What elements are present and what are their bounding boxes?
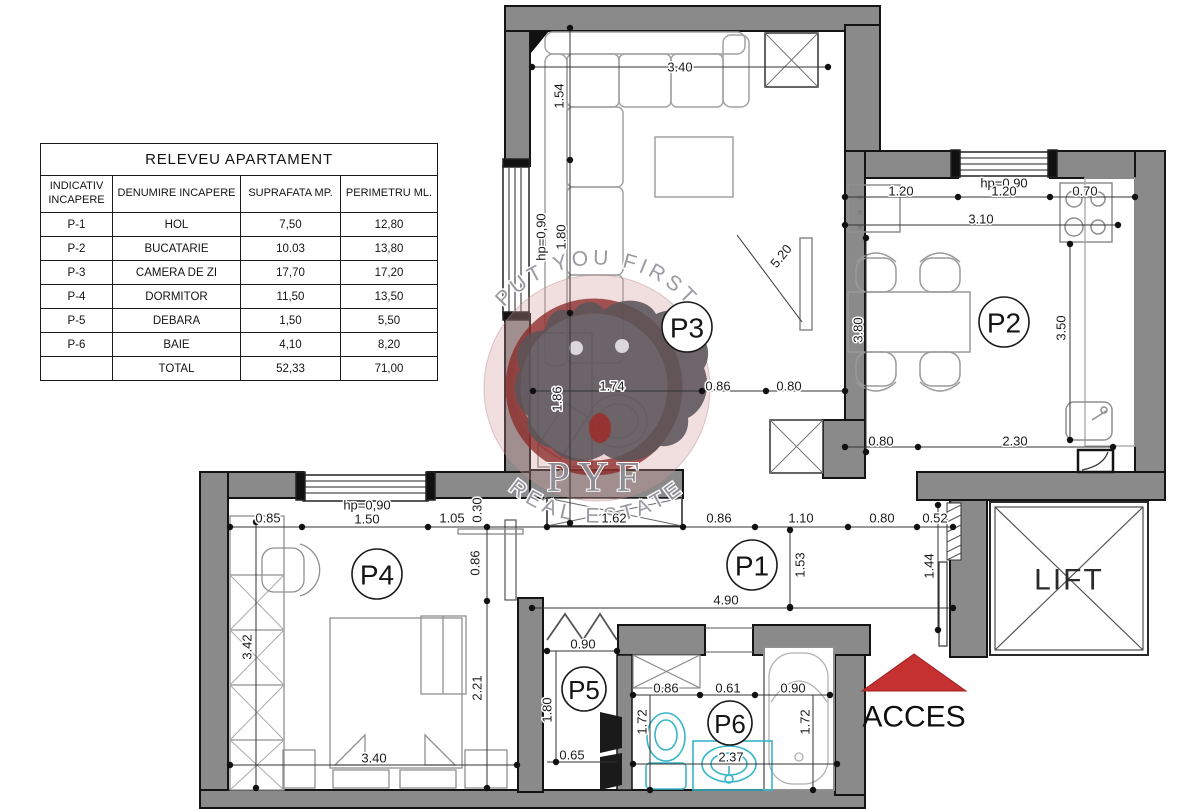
dim-label: 2.21: [470, 675, 485, 700]
access-arrow-icon: [862, 654, 966, 691]
dim-label: 3.50: [1054, 315, 1069, 340]
dim-label: 0.90: [780, 681, 805, 696]
wall: [518, 598, 543, 792]
window-kitchen: [951, 150, 1057, 177]
dim-label: 3.80: [851, 317, 866, 342]
dim-label: 0.30: [470, 497, 485, 522]
dim-label: 0.90: [570, 637, 595, 652]
bathroom-door-threshold: [705, 628, 753, 652]
svg-text:P4: P4: [360, 560, 394, 591]
room-label-p3: P3: [662, 302, 712, 352]
dim-label: 0.80: [869, 511, 894, 526]
dim-label: 3.42: [240, 634, 255, 659]
watermark: PUT YOU FIRST REAL ESTATE PYF: [484, 246, 710, 527]
dim-label: hp=0,90: [343, 498, 390, 513]
room-label-p5: P5: [562, 667, 606, 711]
svg-text:P3: P3: [670, 313, 704, 344]
room-label-p6: P6: [708, 701, 752, 745]
tall-cabinet: [421, 616, 466, 694]
dim-label: 1.44: [922, 553, 937, 578]
dim-label: 1.20: [888, 184, 913, 199]
dim-label: 1.05: [439, 511, 464, 526]
bedroom-door-leaf: [505, 520, 516, 600]
shaft-box: [770, 420, 823, 473]
bathroom-sink: [693, 741, 772, 790]
dim-label: hp=0,90: [534, 213, 549, 260]
dim-label: 2.37: [718, 750, 743, 765]
dim-label: 3.10: [968, 212, 993, 227]
bed: [330, 618, 462, 768]
dim-label: 1.74: [599, 379, 624, 394]
wall: [835, 655, 865, 795]
wall: [845, 25, 880, 153]
dim-label: 1.72: [635, 709, 650, 734]
dim-label: 0.61: [715, 681, 740, 696]
tv: [800, 238, 812, 330]
coffee-table: [655, 137, 733, 197]
wall: [1135, 151, 1165, 500]
dim-label: 1.10: [788, 511, 813, 526]
dim-label: 1.53: [793, 552, 808, 577]
watermark-monogram: PYF: [546, 455, 647, 501]
access-marker: ACCES: [862, 654, 966, 734]
nightstand: [283, 750, 315, 788]
kitchen-door: [1078, 450, 1113, 472]
svg-text:P1: P1: [735, 551, 769, 582]
dim-label: 1.54: [552, 83, 567, 108]
wall: [917, 472, 1165, 500]
dim-label: 0.86: [706, 511, 731, 526]
wall: [505, 6, 880, 31]
dim-label: 1.20: [991, 184, 1016, 199]
dim-label: 1.80: [554, 224, 569, 249]
room-label-p2: P2: [979, 297, 1029, 347]
dim-label: 0.85: [255, 511, 280, 526]
lift: LIFT: [990, 502, 1148, 655]
dim-label: 0.70: [1072, 184, 1097, 199]
room-label-p1: P1: [727, 540, 777, 590]
dim-label: 0.80: [868, 434, 893, 449]
lift-label: LIFT: [1034, 564, 1104, 597]
entry-door-leaf: [939, 562, 947, 646]
dim-label: 3.40: [361, 751, 386, 766]
dim-label: 0.86: [468, 550, 483, 575]
kitchen-sink: [1066, 402, 1112, 440]
svg-text:P5: P5: [568, 675, 600, 705]
dim-label: 1.62: [601, 511, 626, 526]
floorplan-drawing: * * *: [0, 0, 1200, 809]
dim-label: 0.86: [653, 681, 678, 696]
dim-label: 0.80: [776, 379, 801, 394]
dim-label: 1.50: [354, 512, 379, 527]
dog-tongue: [589, 413, 611, 443]
dim-label: 2.30: [1002, 434, 1027, 449]
dim-label: 1.86: [550, 386, 565, 411]
svg-text:P6: P6: [714, 709, 746, 739]
pillow: [333, 770, 389, 788]
dim-label: 4.90: [713, 593, 738, 608]
wall: [200, 472, 228, 792]
dim-label: 0.52: [922, 511, 947, 526]
dim-label: 0.86: [705, 379, 730, 394]
dining-chairs: [856, 253, 960, 391]
access-label: ACCES: [862, 701, 965, 734]
toilet: [646, 713, 686, 789]
floorplan-page: RELEVEU APARTAMENT INDICATIV INCAPERE DE…: [0, 0, 1200, 809]
room-label-p4: P4: [352, 549, 402, 599]
dim-label: 1.80: [540, 697, 555, 722]
shaft-box: [765, 33, 818, 87]
dim-label: 0.65: [559, 748, 584, 763]
svg-text:P2: P2: [987, 308, 1021, 339]
dim-label: 3.40: [667, 60, 692, 75]
wall: [505, 31, 530, 166]
wardrobe: [230, 516, 284, 790]
pillow: [400, 770, 456, 788]
nightstand: [465, 750, 507, 788]
wall: [618, 625, 705, 655]
dim-label: 5.20: [767, 241, 795, 270]
frost-icon: *: [857, 222, 863, 239]
dim-label: 1.72: [798, 709, 813, 734]
